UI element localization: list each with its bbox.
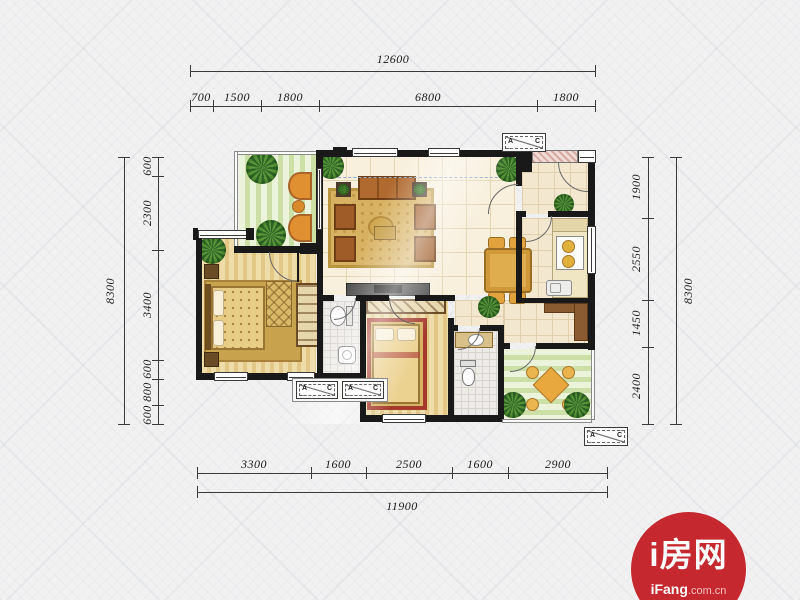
wall: [415, 295, 455, 301]
ac-letter: C: [373, 385, 378, 392]
dim-line: [158, 157, 159, 425]
ac-unit-symbol: AC: [502, 133, 546, 152]
armchair: [414, 236, 436, 262]
tick: [607, 467, 608, 479]
ac-letter: A: [590, 432, 595, 439]
toilet-tank: [460, 360, 476, 367]
wall: [516, 298, 592, 303]
tick: [508, 467, 509, 479]
pillow: [213, 290, 224, 316]
ifang-logo: i房网 iFang.com.cn: [631, 512, 746, 600]
sink-basin: [550, 283, 561, 293]
dim-label: 1900: [629, 159, 643, 215]
dim-line: [197, 492, 608, 493]
dim-line: [190, 106, 596, 107]
wall: [498, 343, 510, 349]
plant-icon: [414, 184, 425, 195]
tick: [197, 486, 198, 498]
wall-column: [246, 228, 254, 240]
dim-label: 1450: [629, 295, 643, 351]
logo-suffix: .com.cn: [688, 585, 727, 597]
plant-icon: [246, 152, 278, 184]
nightstand: [204, 264, 219, 279]
dim-label: 3300: [226, 457, 282, 471]
tick: [319, 100, 320, 112]
nightstand: [204, 352, 219, 367]
window: [428, 148, 460, 157]
wall: [448, 318, 454, 422]
dim-label: 1500: [209, 90, 265, 104]
dim-label: 8300: [103, 263, 117, 319]
dim-label: 6800: [400, 90, 456, 104]
lounge-chair: [288, 214, 312, 242]
tick: [670, 157, 682, 158]
kitchen-cabinet: [552, 218, 588, 232]
tv: [374, 285, 402, 293]
tick: [366, 467, 367, 479]
tick: [213, 100, 214, 112]
stool: [526, 366, 539, 379]
tick: [642, 300, 654, 301]
tick: [670, 424, 682, 425]
wall-column: [333, 147, 347, 157]
dim-label: 8300: [681, 263, 695, 319]
window: [578, 150, 596, 163]
burner: [562, 240, 575, 253]
tick: [118, 157, 130, 158]
tick: [152, 250, 164, 251]
ac-letter: A: [348, 385, 353, 392]
wall: [317, 301, 323, 379]
ac-letter: A: [508, 138, 513, 145]
armchair: [414, 204, 436, 230]
ac-unit-icon: AC: [505, 136, 543, 149]
armchair: [334, 236, 356, 262]
pillow: [397, 328, 416, 341]
ac-letter: C: [535, 138, 540, 145]
dim-label: 1800: [262, 90, 318, 104]
sliding-door: [317, 168, 322, 230]
wall: [360, 295, 366, 422]
dim-line: [197, 473, 608, 474]
ac-unit-icon: AC: [299, 384, 335, 396]
bed-chest: [266, 281, 292, 327]
window: [352, 148, 398, 157]
structure-dashed-line: [328, 177, 518, 178]
blanket: [372, 352, 420, 358]
floorplan-page: 12600 700 1500 1800 6800 1800 3300 1600 …: [0, 0, 800, 600]
balcony-railing: [236, 151, 318, 155]
ac-unit-symbol: AC: [296, 381, 338, 399]
tick: [190, 100, 191, 112]
plant-icon: [564, 392, 590, 418]
pillow: [213, 320, 224, 346]
ac-unit-symbol: AC: [342, 381, 384, 399]
dim-label: 3400: [140, 277, 154, 333]
ac-unit-icon: AC: [587, 430, 625, 443]
balcony-railing: [502, 419, 592, 423]
tick: [118, 424, 130, 425]
tick: [595, 65, 596, 77]
tick: [197, 467, 198, 479]
window: [382, 414, 426, 423]
tick: [537, 100, 538, 112]
wall: [448, 325, 458, 331]
tick: [607, 486, 608, 498]
tick: [595, 100, 596, 112]
window: [214, 372, 248, 381]
logo-domain: iFang.com.cn: [631, 580, 746, 600]
wall: [536, 343, 594, 349]
dim-label: 1600: [452, 457, 508, 471]
dim-label: 11900: [362, 499, 442, 513]
dim-line: [190, 71, 596, 72]
dim-label: 1600: [310, 457, 366, 471]
tick: [642, 347, 654, 348]
balcony-railing: [591, 349, 595, 420]
dim-label: 2550: [629, 231, 643, 287]
wall: [516, 217, 522, 300]
wall: [196, 238, 202, 374]
coffee-table: [374, 226, 396, 240]
tick: [190, 65, 191, 77]
plant-icon: [478, 296, 500, 318]
bar-counter: [574, 303, 588, 341]
sink-basin: [342, 350, 352, 360]
dim-label: 2500: [381, 457, 437, 471]
plant-icon: [338, 184, 349, 195]
bay-window: [198, 230, 248, 239]
window: [587, 226, 596, 274]
stool: [526, 398, 539, 411]
armchair: [334, 204, 356, 230]
patio-table: [292, 200, 305, 213]
wall: [316, 150, 528, 157]
tick: [642, 157, 654, 158]
stool: [562, 366, 575, 379]
wall: [516, 148, 522, 186]
dim-label: 2400: [629, 358, 643, 414]
dim-label: 12600: [353, 52, 433, 66]
ac-letter: A: [302, 385, 307, 392]
tick: [452, 467, 453, 479]
dim-label: 1800: [538, 90, 594, 104]
lounge-chair: [288, 172, 312, 200]
dim-label: 2900: [530, 457, 586, 471]
dim-line: [124, 157, 125, 425]
ac-unit-icon: AC: [345, 384, 381, 396]
tick: [261, 100, 262, 112]
ac-unit-symbol: AC: [584, 427, 628, 446]
plant-icon: [198, 236, 226, 264]
dim-label: 600: [140, 387, 154, 443]
ac-letter: C: [617, 432, 622, 439]
ac-letter: C: [327, 385, 332, 392]
burner: [562, 255, 575, 268]
sofa: [358, 176, 416, 200]
wall: [448, 415, 504, 422]
toilet: [462, 368, 475, 386]
wall: [548, 211, 594, 217]
logo-title: i房网: [631, 536, 746, 574]
tick: [311, 467, 312, 479]
door-leaf: [297, 252, 299, 282]
dim-line: [648, 157, 649, 425]
wall: [498, 325, 504, 422]
pillow: [375, 328, 394, 341]
dim-label: 2300: [140, 185, 154, 241]
dim-line: [676, 157, 677, 425]
tick: [642, 424, 654, 425]
logo-brand: iFang: [651, 581, 688, 597]
tick: [642, 218, 654, 219]
